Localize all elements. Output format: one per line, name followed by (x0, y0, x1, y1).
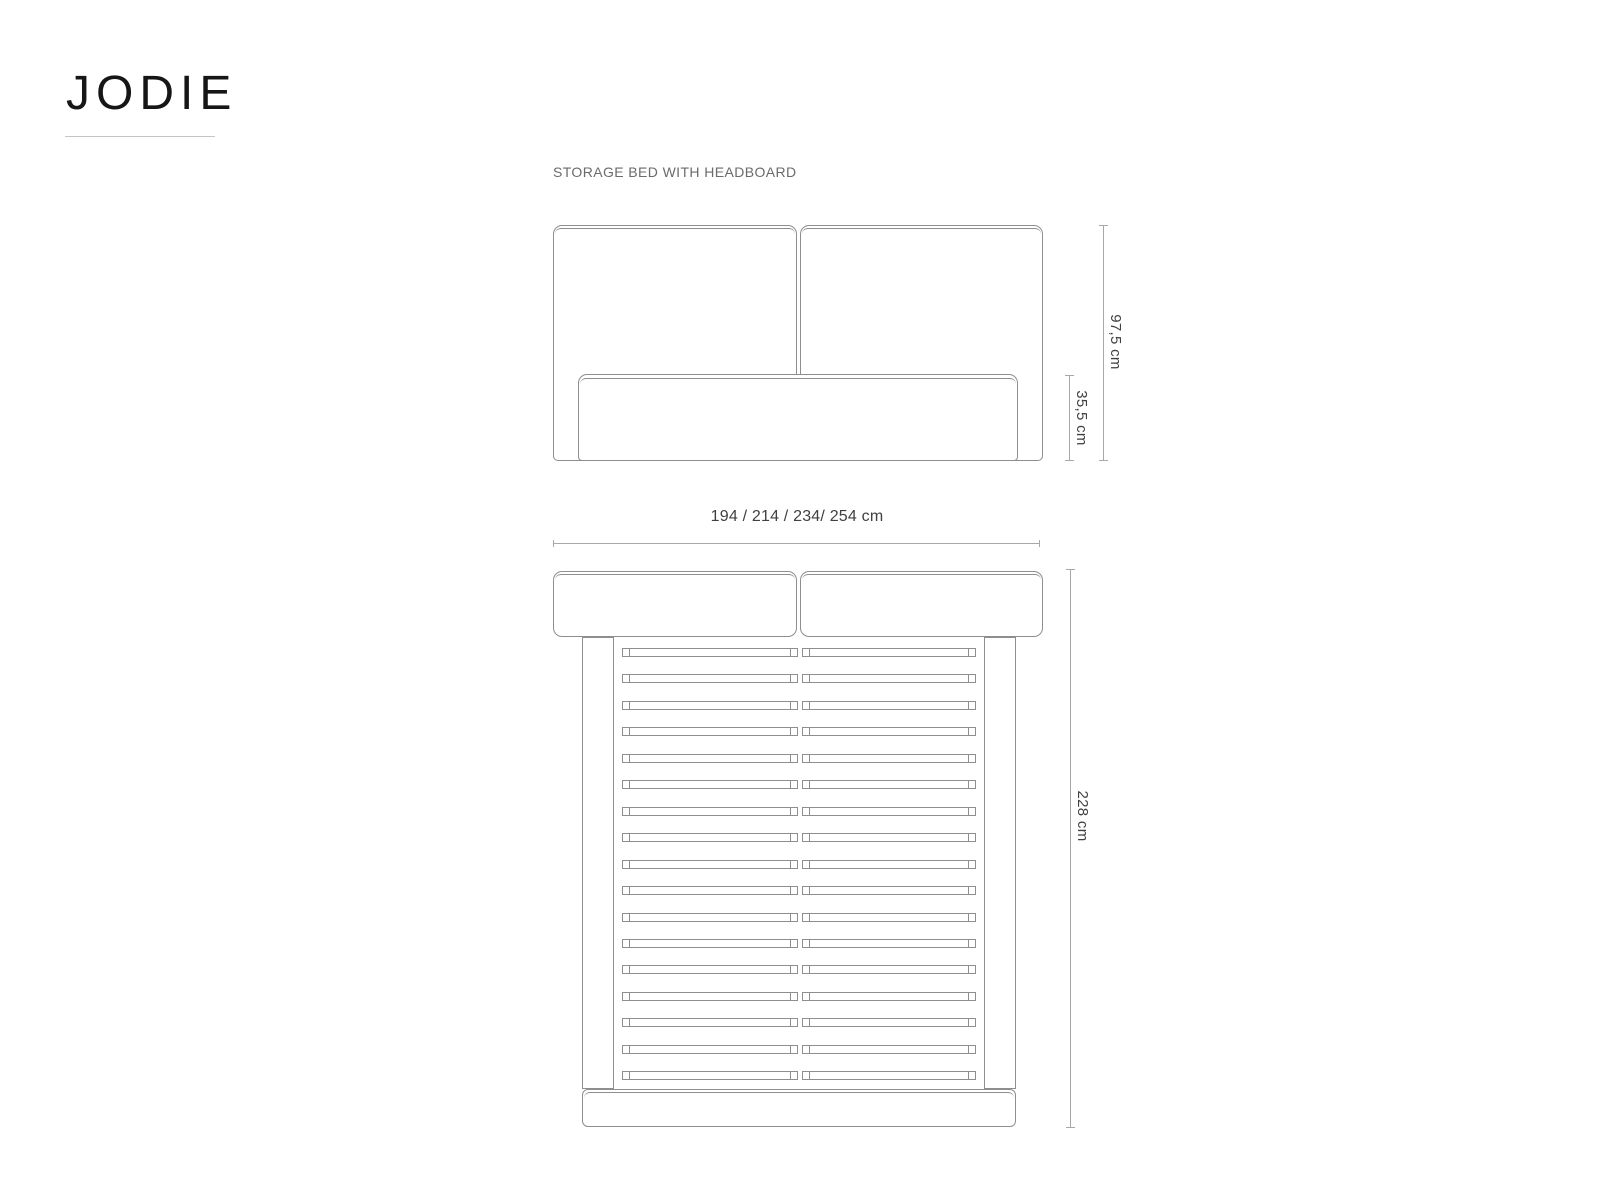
slat-half-left (622, 833, 798, 842)
product-subtitle: STORAGE BED WITH HEADBOARD (553, 164, 797, 180)
storage-height-dim-line (1069, 375, 1070, 461)
slat-half-left (622, 1045, 798, 1054)
slat-half-right (802, 1018, 976, 1027)
slat-half-right (802, 727, 976, 736)
upholstery-seam-line (802, 228, 1041, 234)
side-rail-right (984, 637, 1016, 1089)
slat-half-left (622, 754, 798, 763)
upholstery-seam-line (580, 378, 1016, 384)
title-underline (65, 136, 215, 137)
slat-half-left (622, 992, 798, 1001)
upholstery-seam-line (555, 228, 795, 234)
upholstery-seam-line (584, 1092, 1014, 1098)
slat-half-right (802, 939, 976, 948)
footer-bar-top (582, 1089, 1016, 1127)
slat-half-left (622, 860, 798, 869)
slat-half-right (802, 807, 976, 816)
slat-half-right (802, 648, 976, 657)
length-dim-line (1070, 569, 1071, 1128)
slat-half-left (622, 939, 798, 948)
slat-half-right (802, 860, 976, 869)
length-label: 228 cm (1074, 791, 1091, 842)
slat-half-right (802, 833, 976, 842)
slat-half-left (622, 701, 798, 710)
bed-base-front (578, 374, 1018, 461)
storage-height-label: 35,5 cm (1073, 390, 1090, 445)
slat-half-left (622, 727, 798, 736)
headboard-right-panel-top (800, 571, 1043, 637)
slat-half-left (622, 674, 798, 683)
slat-half-left (622, 965, 798, 974)
slat-half-right (802, 701, 976, 710)
headboard-height-dim-line (1103, 225, 1104, 461)
headboard-height-label: 97,5 cm (1107, 314, 1124, 369)
upholstery-seam-line (802, 574, 1041, 580)
headboard-left-panel-top (553, 571, 797, 637)
slat-half-right (802, 1045, 976, 1054)
slat-half-left (622, 1071, 798, 1080)
slat-half-left (622, 807, 798, 816)
slat-half-right (802, 780, 976, 789)
bed-spec-sheet: JODIE STORAGE BED WITH HEADBOARD 97,5 cm… (0, 0, 1600, 1200)
slat-half-right (802, 965, 976, 974)
slat-half-right (802, 886, 976, 895)
slat-half-left (622, 886, 798, 895)
slat-half-left (622, 913, 798, 922)
slat-half-left (622, 780, 798, 789)
slat-half-left (622, 648, 798, 657)
width-dim-line (553, 543, 1040, 544)
product-title: JODIE (66, 68, 237, 121)
slat-half-right (802, 992, 976, 1001)
upholstery-seam-line (555, 574, 795, 580)
slat-half-right (802, 674, 976, 683)
slat-half-left (622, 1018, 798, 1027)
slat-half-right (802, 754, 976, 763)
slat-half-right (802, 913, 976, 922)
width-options-label: 194 / 214 / 234/ 254 cm (711, 508, 884, 526)
side-rail-left (582, 637, 614, 1089)
slat-half-right (802, 1071, 976, 1080)
